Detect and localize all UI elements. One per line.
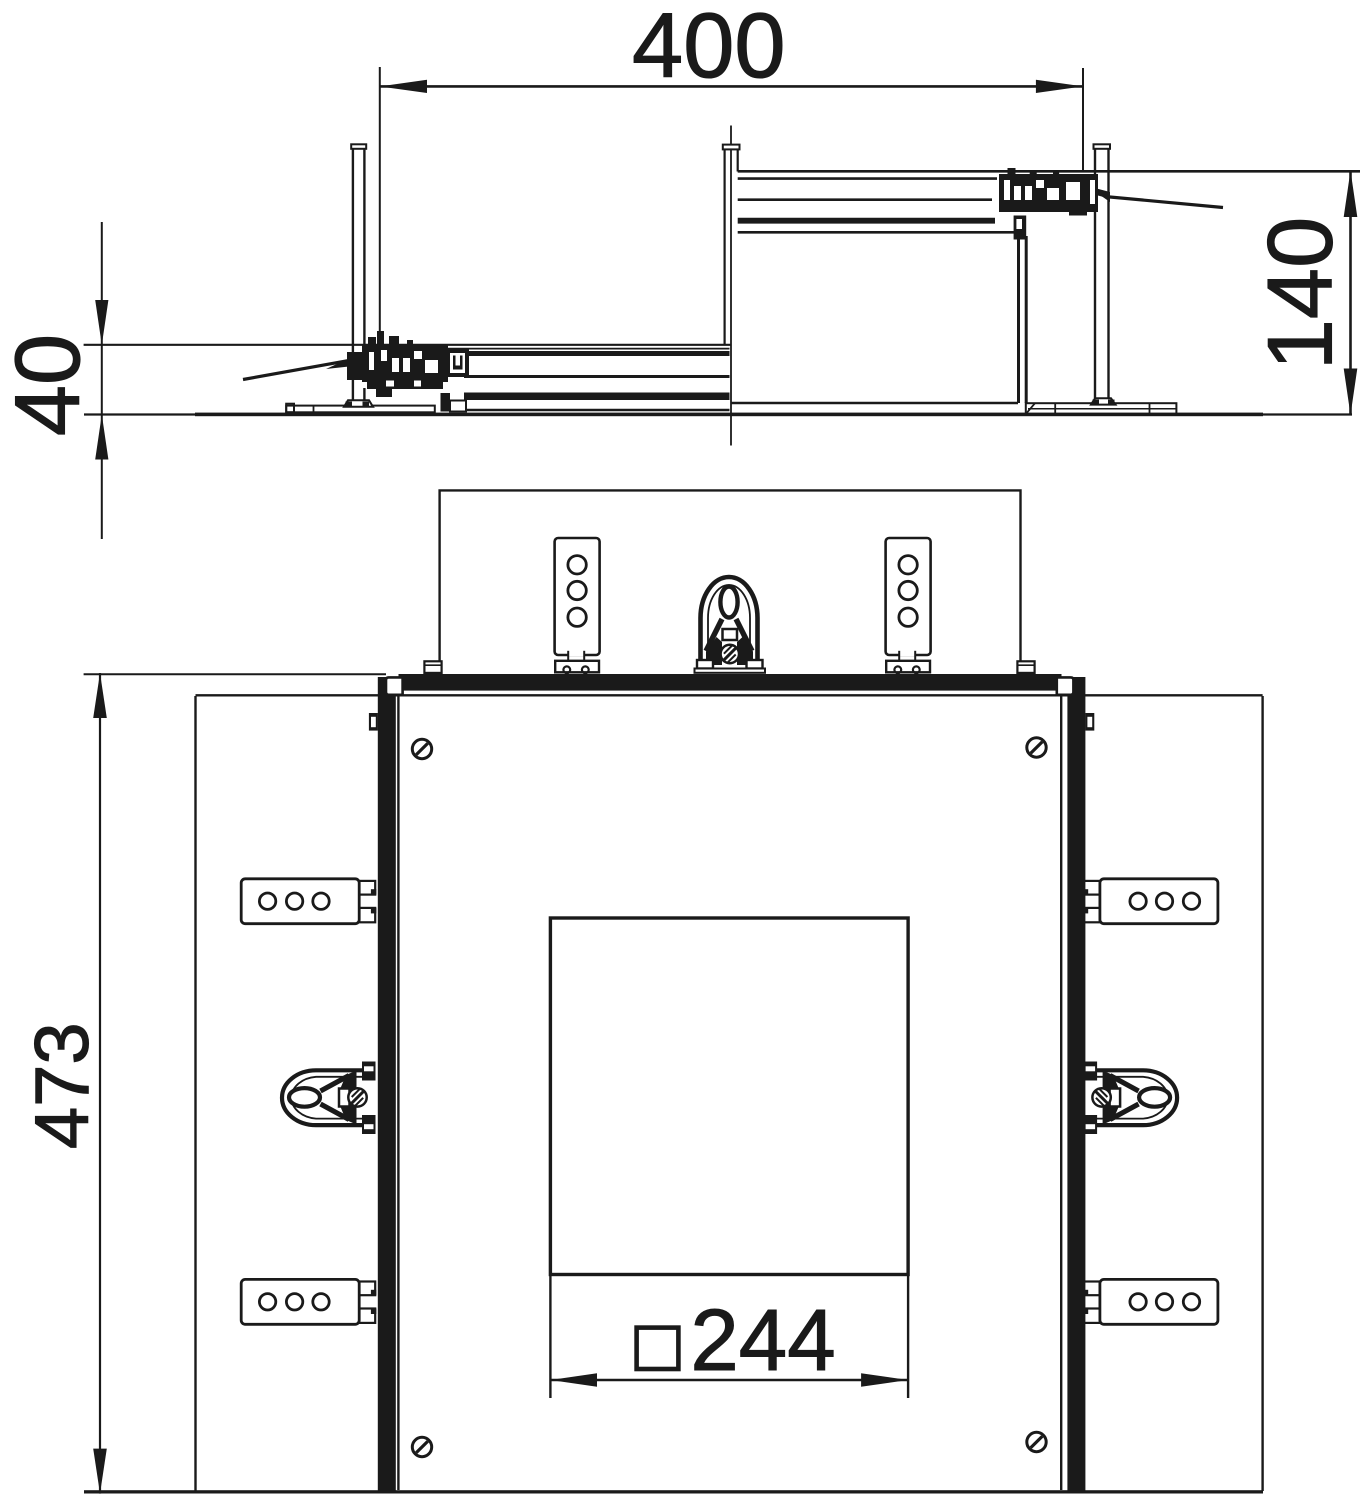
svg-text:40: 40: [0, 334, 99, 436]
svg-text:244: 244: [690, 1292, 835, 1389]
svg-text:140: 140: [1250, 217, 1352, 371]
svg-text:400: 400: [632, 0, 786, 97]
svg-text:473: 473: [20, 1022, 105, 1149]
